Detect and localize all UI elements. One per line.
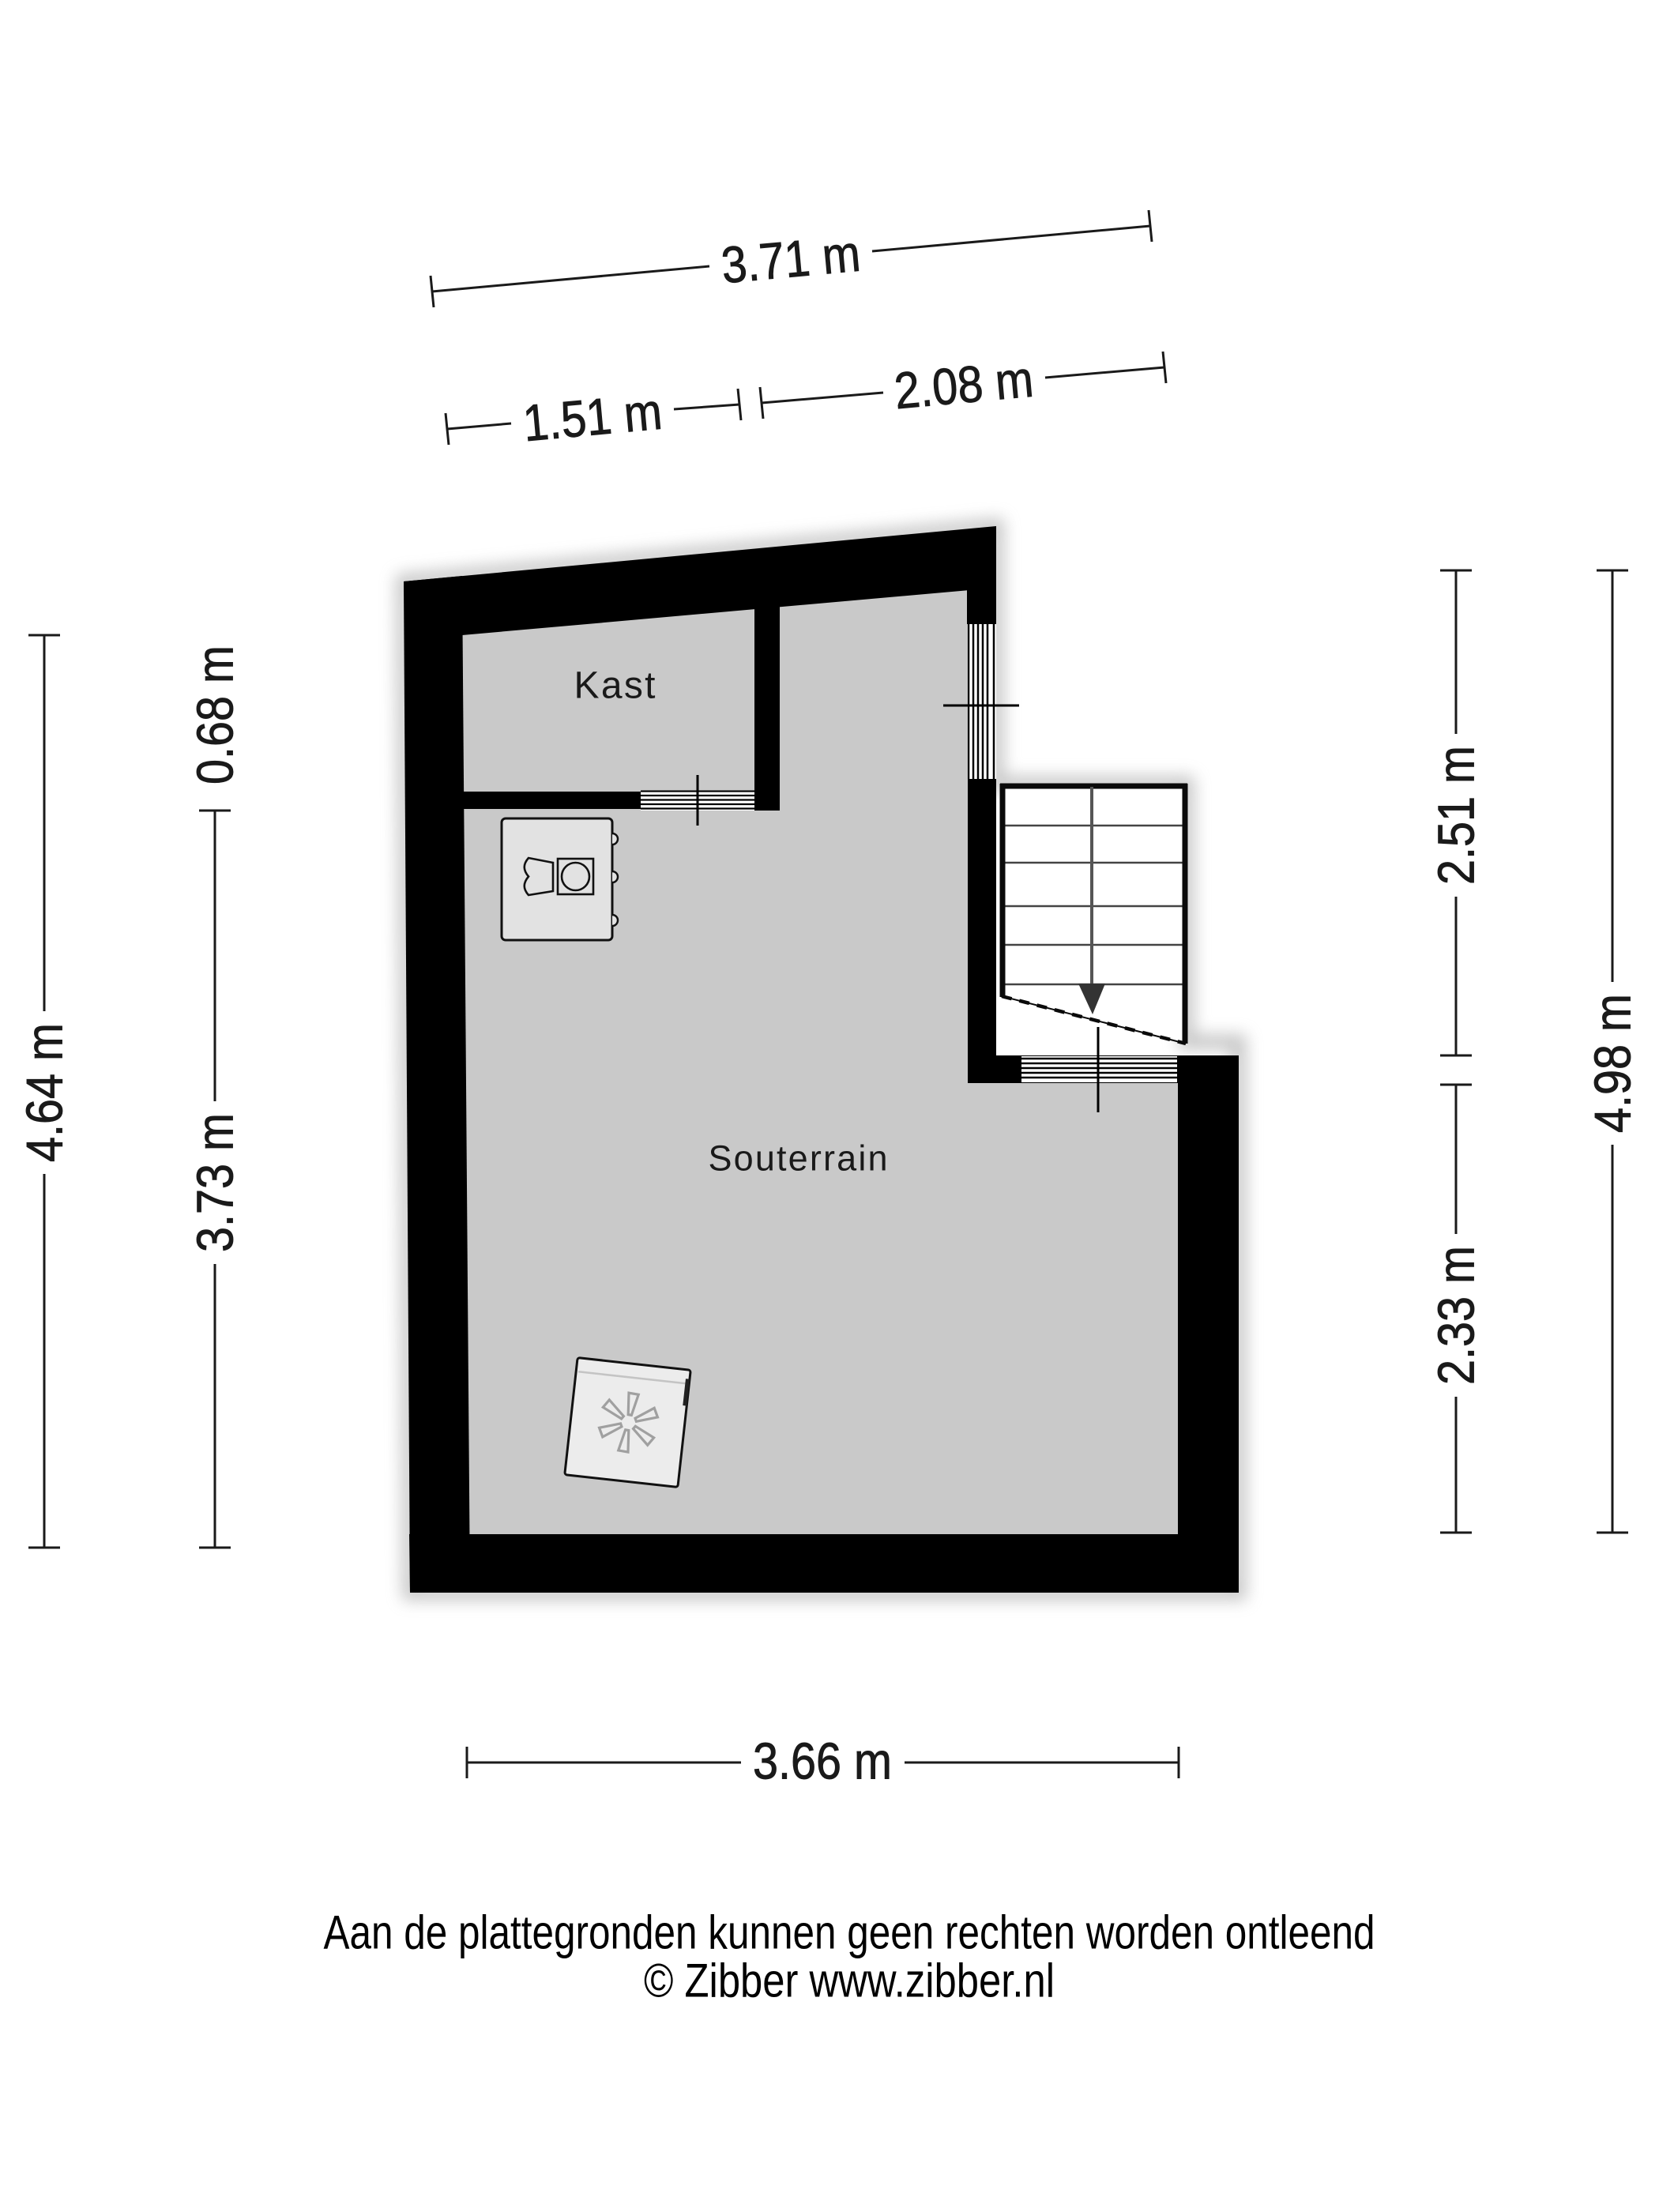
svg-text:Aan de plattegronden kunnen ge: Aan de plattegronden kunnen geen rechten… (324, 1906, 1375, 1959)
svg-text:3.66 m: 3.66 m (753, 1732, 892, 1790)
svg-text:0.68 m: 0.68 m (186, 645, 244, 784)
svg-text:4.98 m: 4.98 m (1584, 994, 1642, 1133)
svg-text:2.51 m: 2.51 m (1428, 746, 1485, 885)
svg-text:Souterrain: Souterrain (709, 1138, 888, 1179)
svg-text:4.64 m: 4.64 m (16, 1023, 73, 1162)
svg-text:2.33 m: 2.33 m (1428, 1246, 1485, 1385)
svg-text:© Zibber www.zibber.nl: © Zibber www.zibber.nl (644, 1954, 1055, 2007)
svg-text:3.73 m: 3.73 m (186, 1113, 244, 1252)
